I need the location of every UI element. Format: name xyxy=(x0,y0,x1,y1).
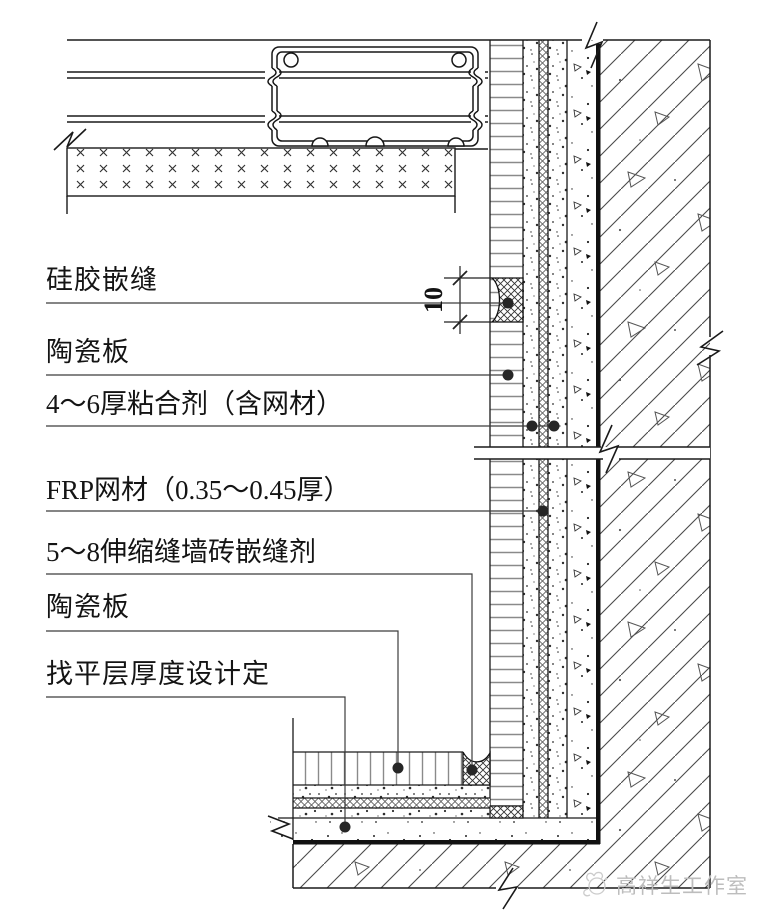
label-ceramic-panel-floor: 陶瓷板 xyxy=(46,591,130,623)
label-frp-mesh: FRP网材（0.35～0.45厚） xyxy=(46,474,351,506)
dimension-lines xyxy=(444,266,492,334)
insulation-layer xyxy=(67,148,455,214)
section-drawing xyxy=(0,0,758,922)
channel-lip-right xyxy=(452,53,466,67)
channel-lip-left xyxy=(284,53,298,67)
dimension-extension-lines xyxy=(444,278,492,322)
floor-leveling-layer xyxy=(270,818,596,840)
label-expansion-joint-sealant: 5～8伸缩缝墙砖嵌缝剂 xyxy=(46,536,316,568)
wall-leveling-layer xyxy=(567,40,596,818)
wall-face-line xyxy=(596,44,601,844)
watermark-text: 高祥生工作室 xyxy=(616,870,748,900)
break-zigzag-ceiling-left xyxy=(54,129,86,150)
floor-adhesive-layer-1 xyxy=(293,785,490,798)
label-adhesive-with-mesh: 4～6厚粘合剂（含网材） xyxy=(46,388,343,420)
dimension-value: 10 xyxy=(421,274,447,326)
wall-ceramic-panel xyxy=(490,40,523,806)
label-leveling-layer: 找平层厚度设计定 xyxy=(46,658,270,690)
metal-furring-channel xyxy=(265,47,485,146)
floor-ceramic-panel xyxy=(293,752,463,785)
slab-top-line xyxy=(293,840,600,845)
under-wall-joint xyxy=(490,806,523,818)
wall-frp-mesh-layer xyxy=(539,40,548,818)
floor-frp-mesh-layer xyxy=(293,798,490,808)
floor-adhesive-layer-2 xyxy=(293,808,490,818)
detail-drawing-canvas: 硅胶嵌缝 陶瓷板 4～6厚粘合剂（含网材） FRP网材（0.35～0.45厚） … xyxy=(0,0,758,922)
studio-logo-icon xyxy=(582,869,612,901)
label-ceramic-panel-wall: 陶瓷板 xyxy=(46,336,130,368)
watermark: 高祥生工作室 xyxy=(582,869,748,901)
label-silicone-caulk: 硅胶嵌缝 xyxy=(46,264,158,296)
wall-finish-layers xyxy=(490,40,601,844)
